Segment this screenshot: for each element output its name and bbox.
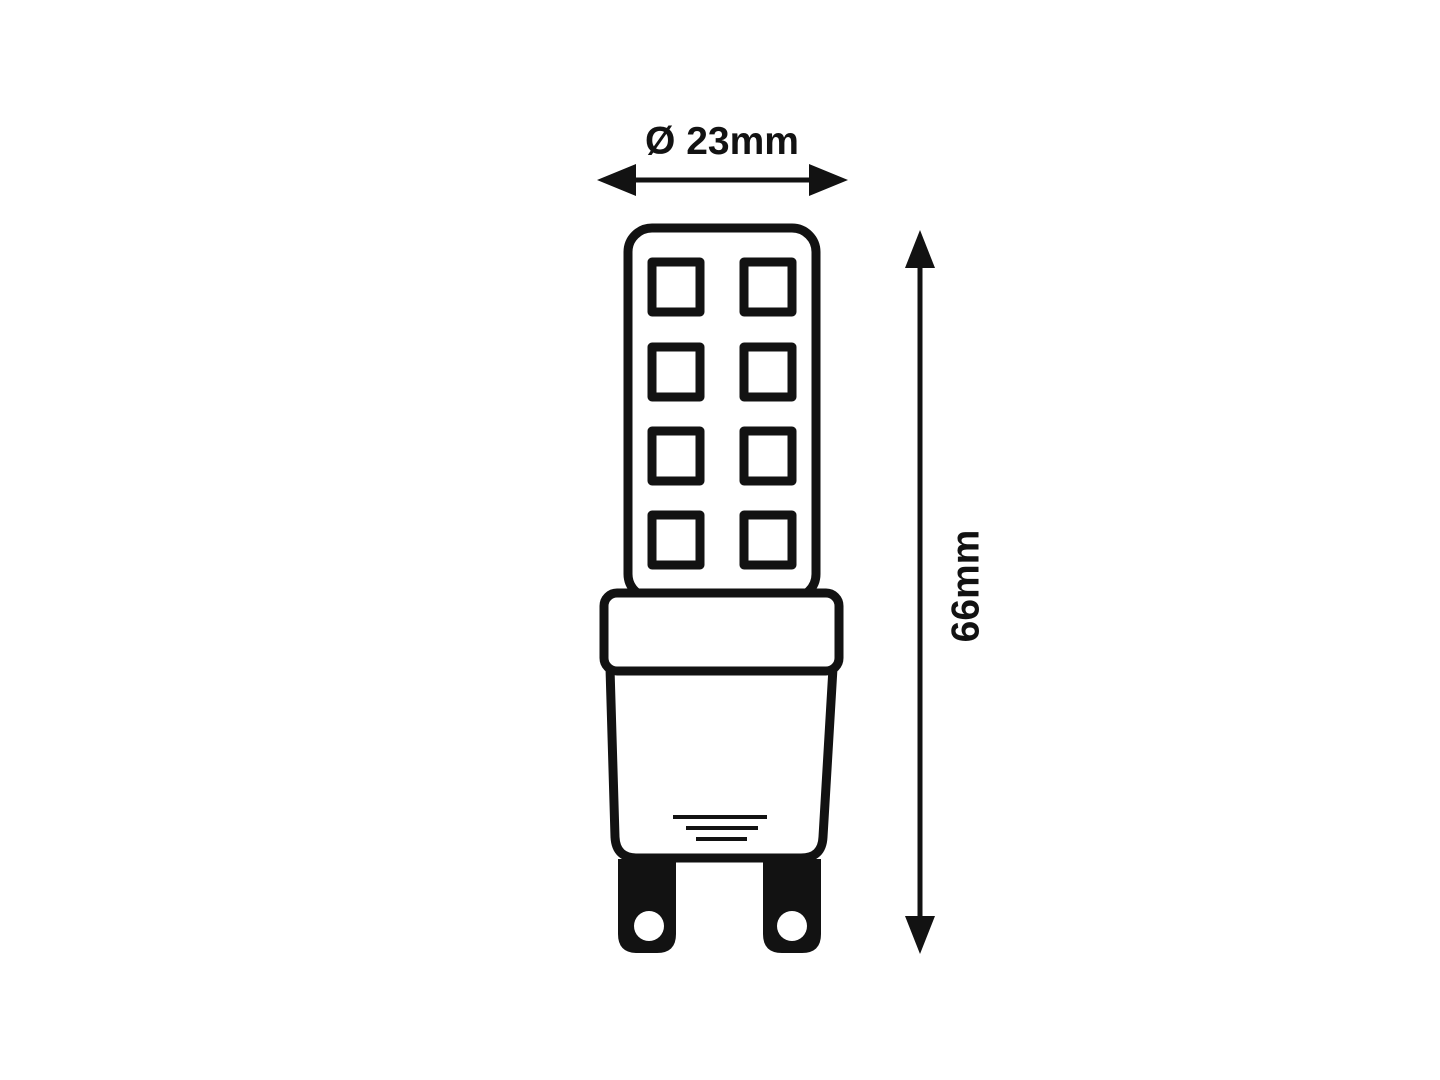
pins xyxy=(618,859,821,953)
diameter-dimension: Ø 23mm xyxy=(597,120,848,196)
led-chip xyxy=(652,347,700,397)
pin-left-hole xyxy=(634,911,664,941)
led-chip xyxy=(744,262,792,312)
led-chip xyxy=(652,515,700,565)
pin-right-hole xyxy=(777,911,807,941)
diameter-label: Ø 23mm xyxy=(645,120,799,163)
bulb-dimension-diagram: Ø 23mm xyxy=(0,0,1440,1080)
height-arrowhead-bottom-icon xyxy=(905,916,935,954)
height-arrowhead-top-icon xyxy=(905,230,935,268)
diameter-arrowhead-left-icon xyxy=(597,164,636,196)
height-dimension: 66mm xyxy=(905,230,988,954)
led-chip xyxy=(652,262,700,312)
height-label: 66mm xyxy=(945,530,988,643)
led-chip xyxy=(744,347,792,397)
diagram-canvas: Ø 23mm xyxy=(0,0,1440,1080)
diameter-arrowhead-right-icon xyxy=(809,164,848,196)
bulb-outline xyxy=(604,228,839,858)
led-chip xyxy=(744,515,792,565)
led-chip xyxy=(652,431,700,481)
bulb-collar xyxy=(604,593,839,671)
led-chip xyxy=(744,431,792,481)
